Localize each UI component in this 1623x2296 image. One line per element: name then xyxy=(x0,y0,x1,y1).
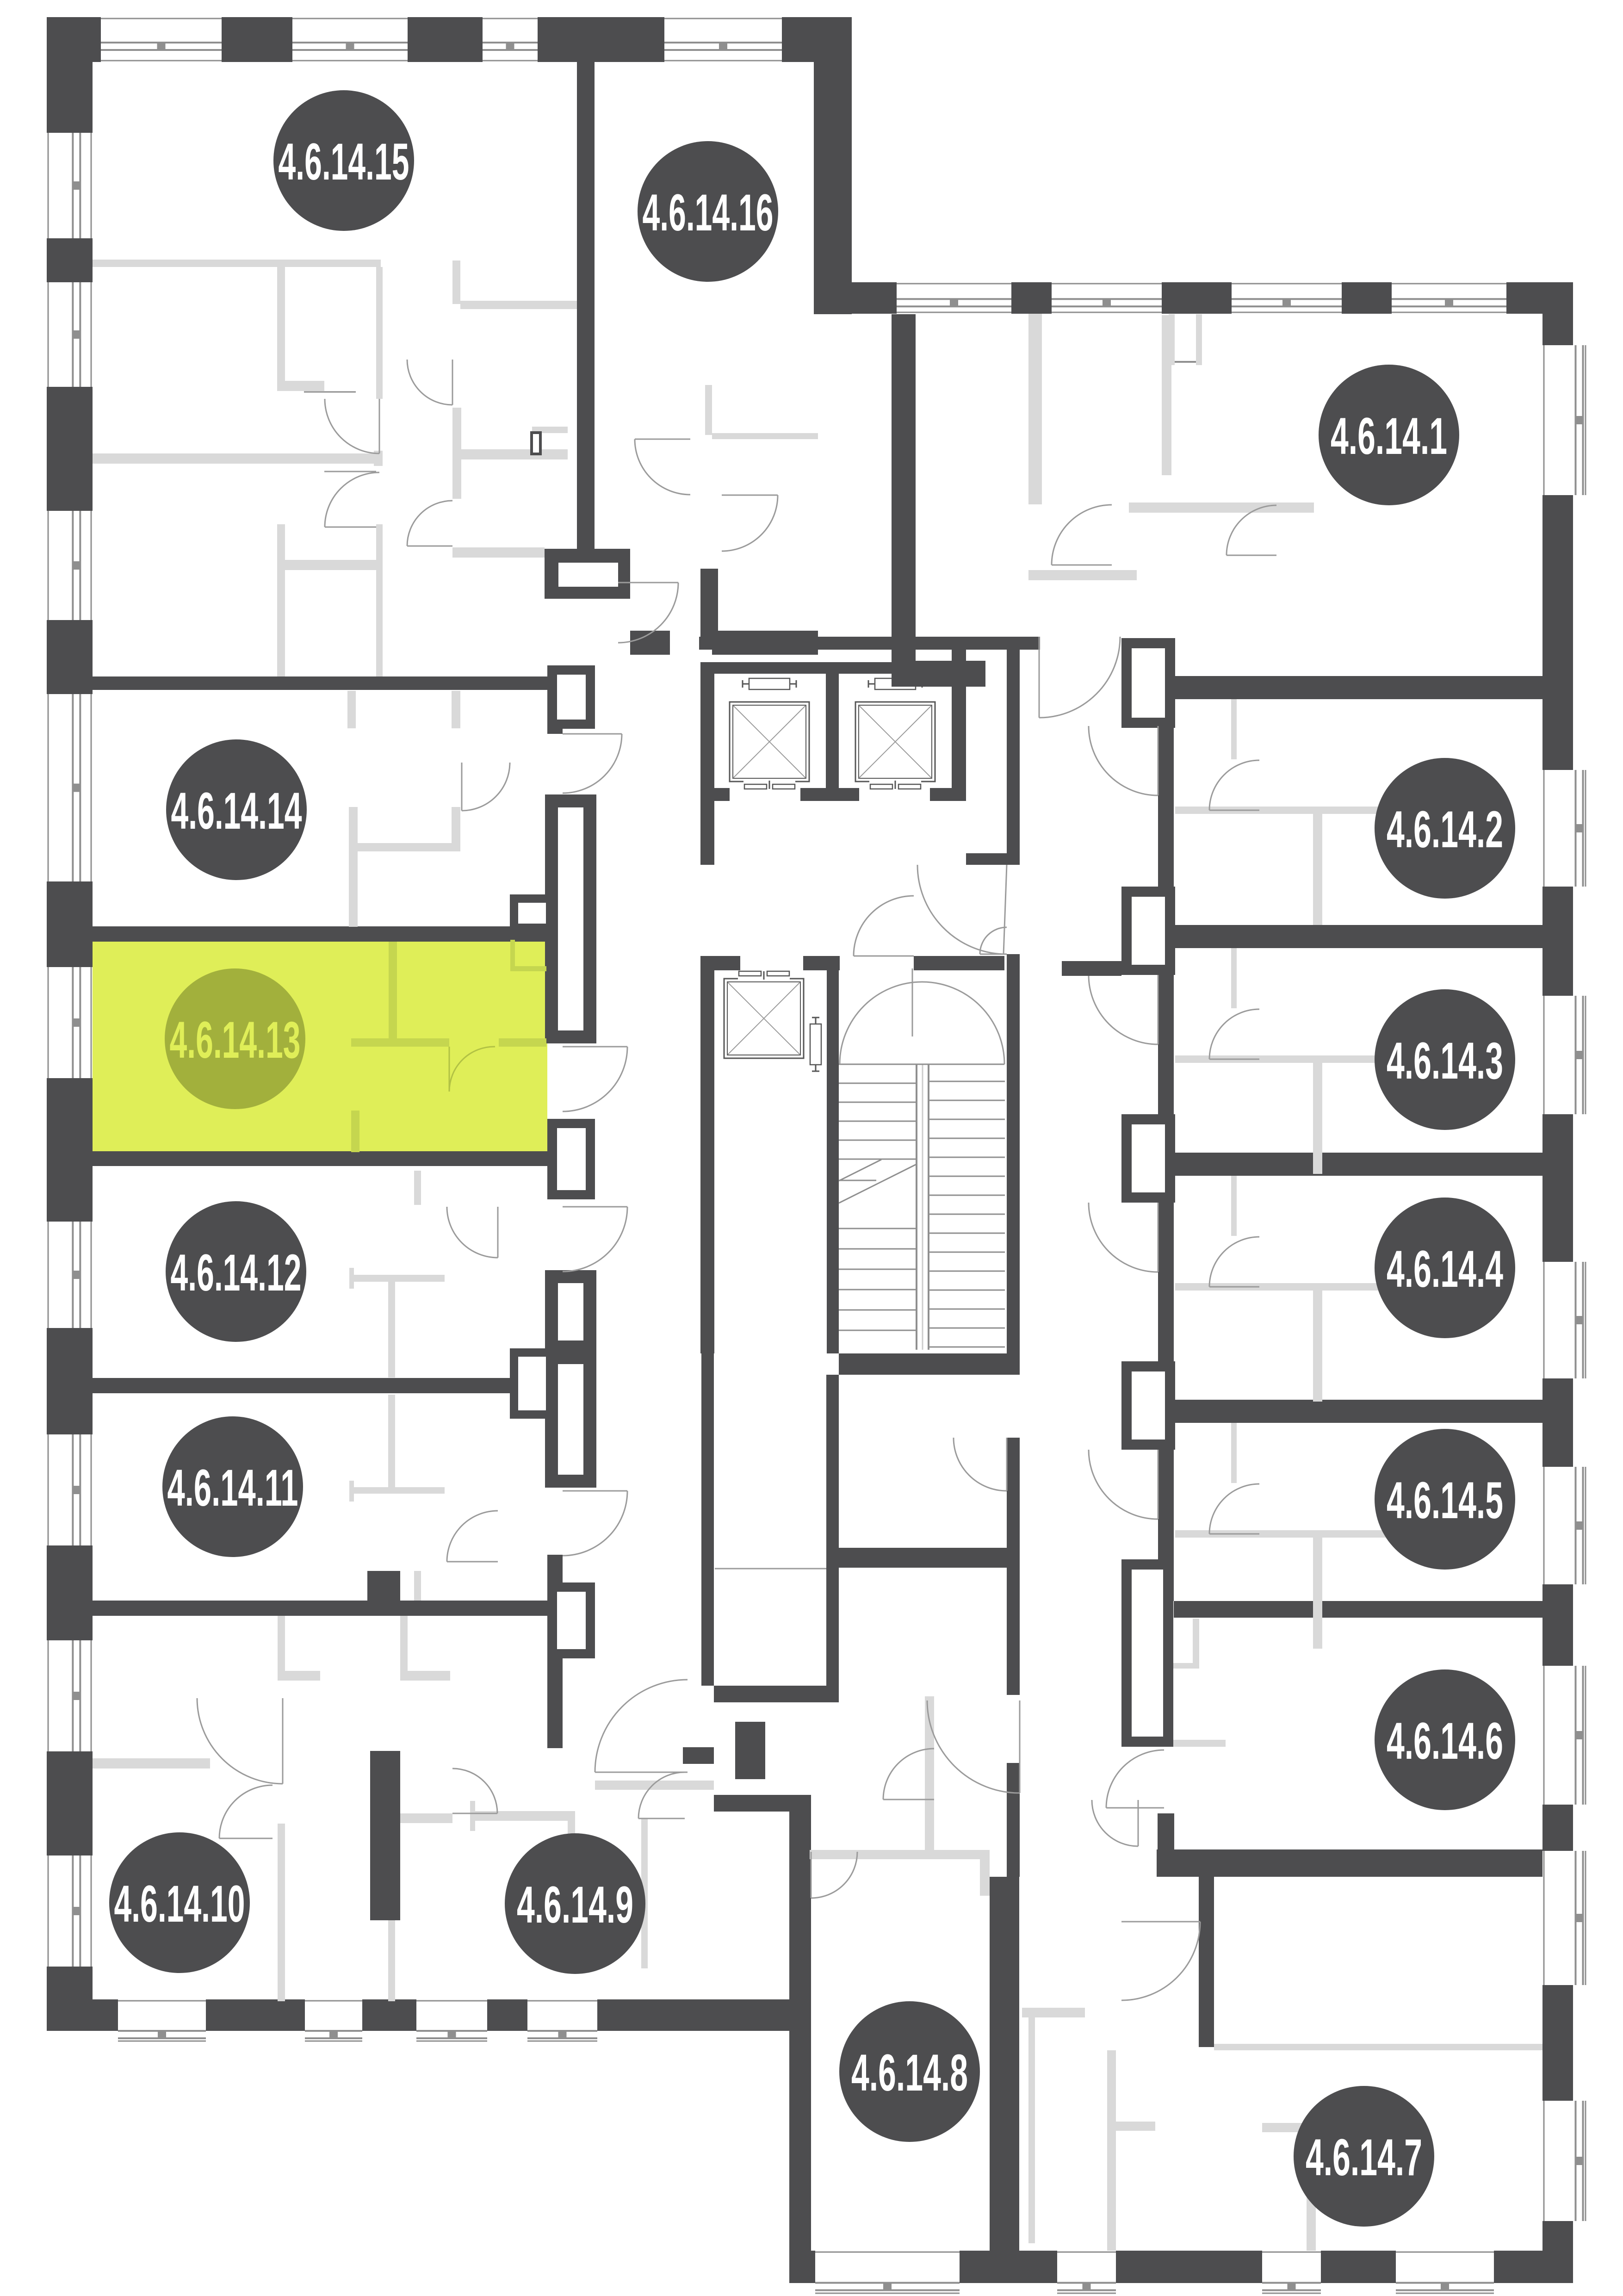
svg-text:4.6.14.14: 4.6.14.14 xyxy=(171,782,302,840)
svg-text:4.6.14.7: 4.6.14.7 xyxy=(1306,2128,1422,2186)
svg-text:4.6.14.2: 4.6.14.2 xyxy=(1387,800,1503,858)
svg-text:4.6.14.5: 4.6.14.5 xyxy=(1387,1471,1503,1529)
svg-text:4.6.14.10: 4.6.14.10 xyxy=(114,1875,245,1933)
svg-text:4.6.14.8: 4.6.14.8 xyxy=(851,2044,968,2102)
svg-text:4.6.14.12: 4.6.14.12 xyxy=(171,1244,302,1302)
svg-text:4.6.14.11: 4.6.14.11 xyxy=(167,1459,298,1517)
svg-text:4.6.14.3: 4.6.14.3 xyxy=(1387,1032,1503,1090)
svg-text:4.6.14.13: 4.6.14.13 xyxy=(170,1011,301,1069)
svg-text:4.6.14.6: 4.6.14.6 xyxy=(1387,1712,1503,1770)
svg-text:4.6.14.16: 4.6.14.16 xyxy=(643,184,774,242)
svg-text:4.6.14.9: 4.6.14.9 xyxy=(517,1876,633,1934)
svg-text:4.6.14.4: 4.6.14.4 xyxy=(1387,1240,1503,1298)
svg-text:4.6.14.1: 4.6.14.1 xyxy=(1331,407,1447,465)
svg-text:4.6.14.15: 4.6.14.15 xyxy=(279,133,409,191)
